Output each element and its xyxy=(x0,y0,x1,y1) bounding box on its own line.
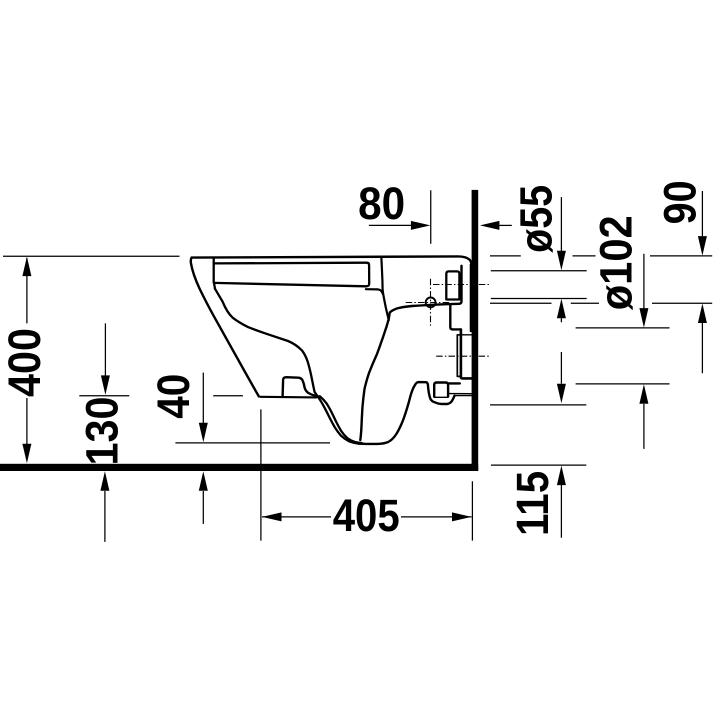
svg-text:400: 400 xyxy=(0,328,50,397)
svg-text:ø102: ø102 xyxy=(590,215,641,310)
svg-text:115: 115 xyxy=(507,471,558,536)
svg-text:40: 40 xyxy=(148,374,199,419)
svg-text:405: 405 xyxy=(333,490,400,541)
svg-text:90: 90 xyxy=(655,180,706,224)
svg-text:80: 80 xyxy=(358,178,405,229)
svg-text:130: 130 xyxy=(76,397,127,466)
svg-text:ø55: ø55 xyxy=(510,185,561,253)
